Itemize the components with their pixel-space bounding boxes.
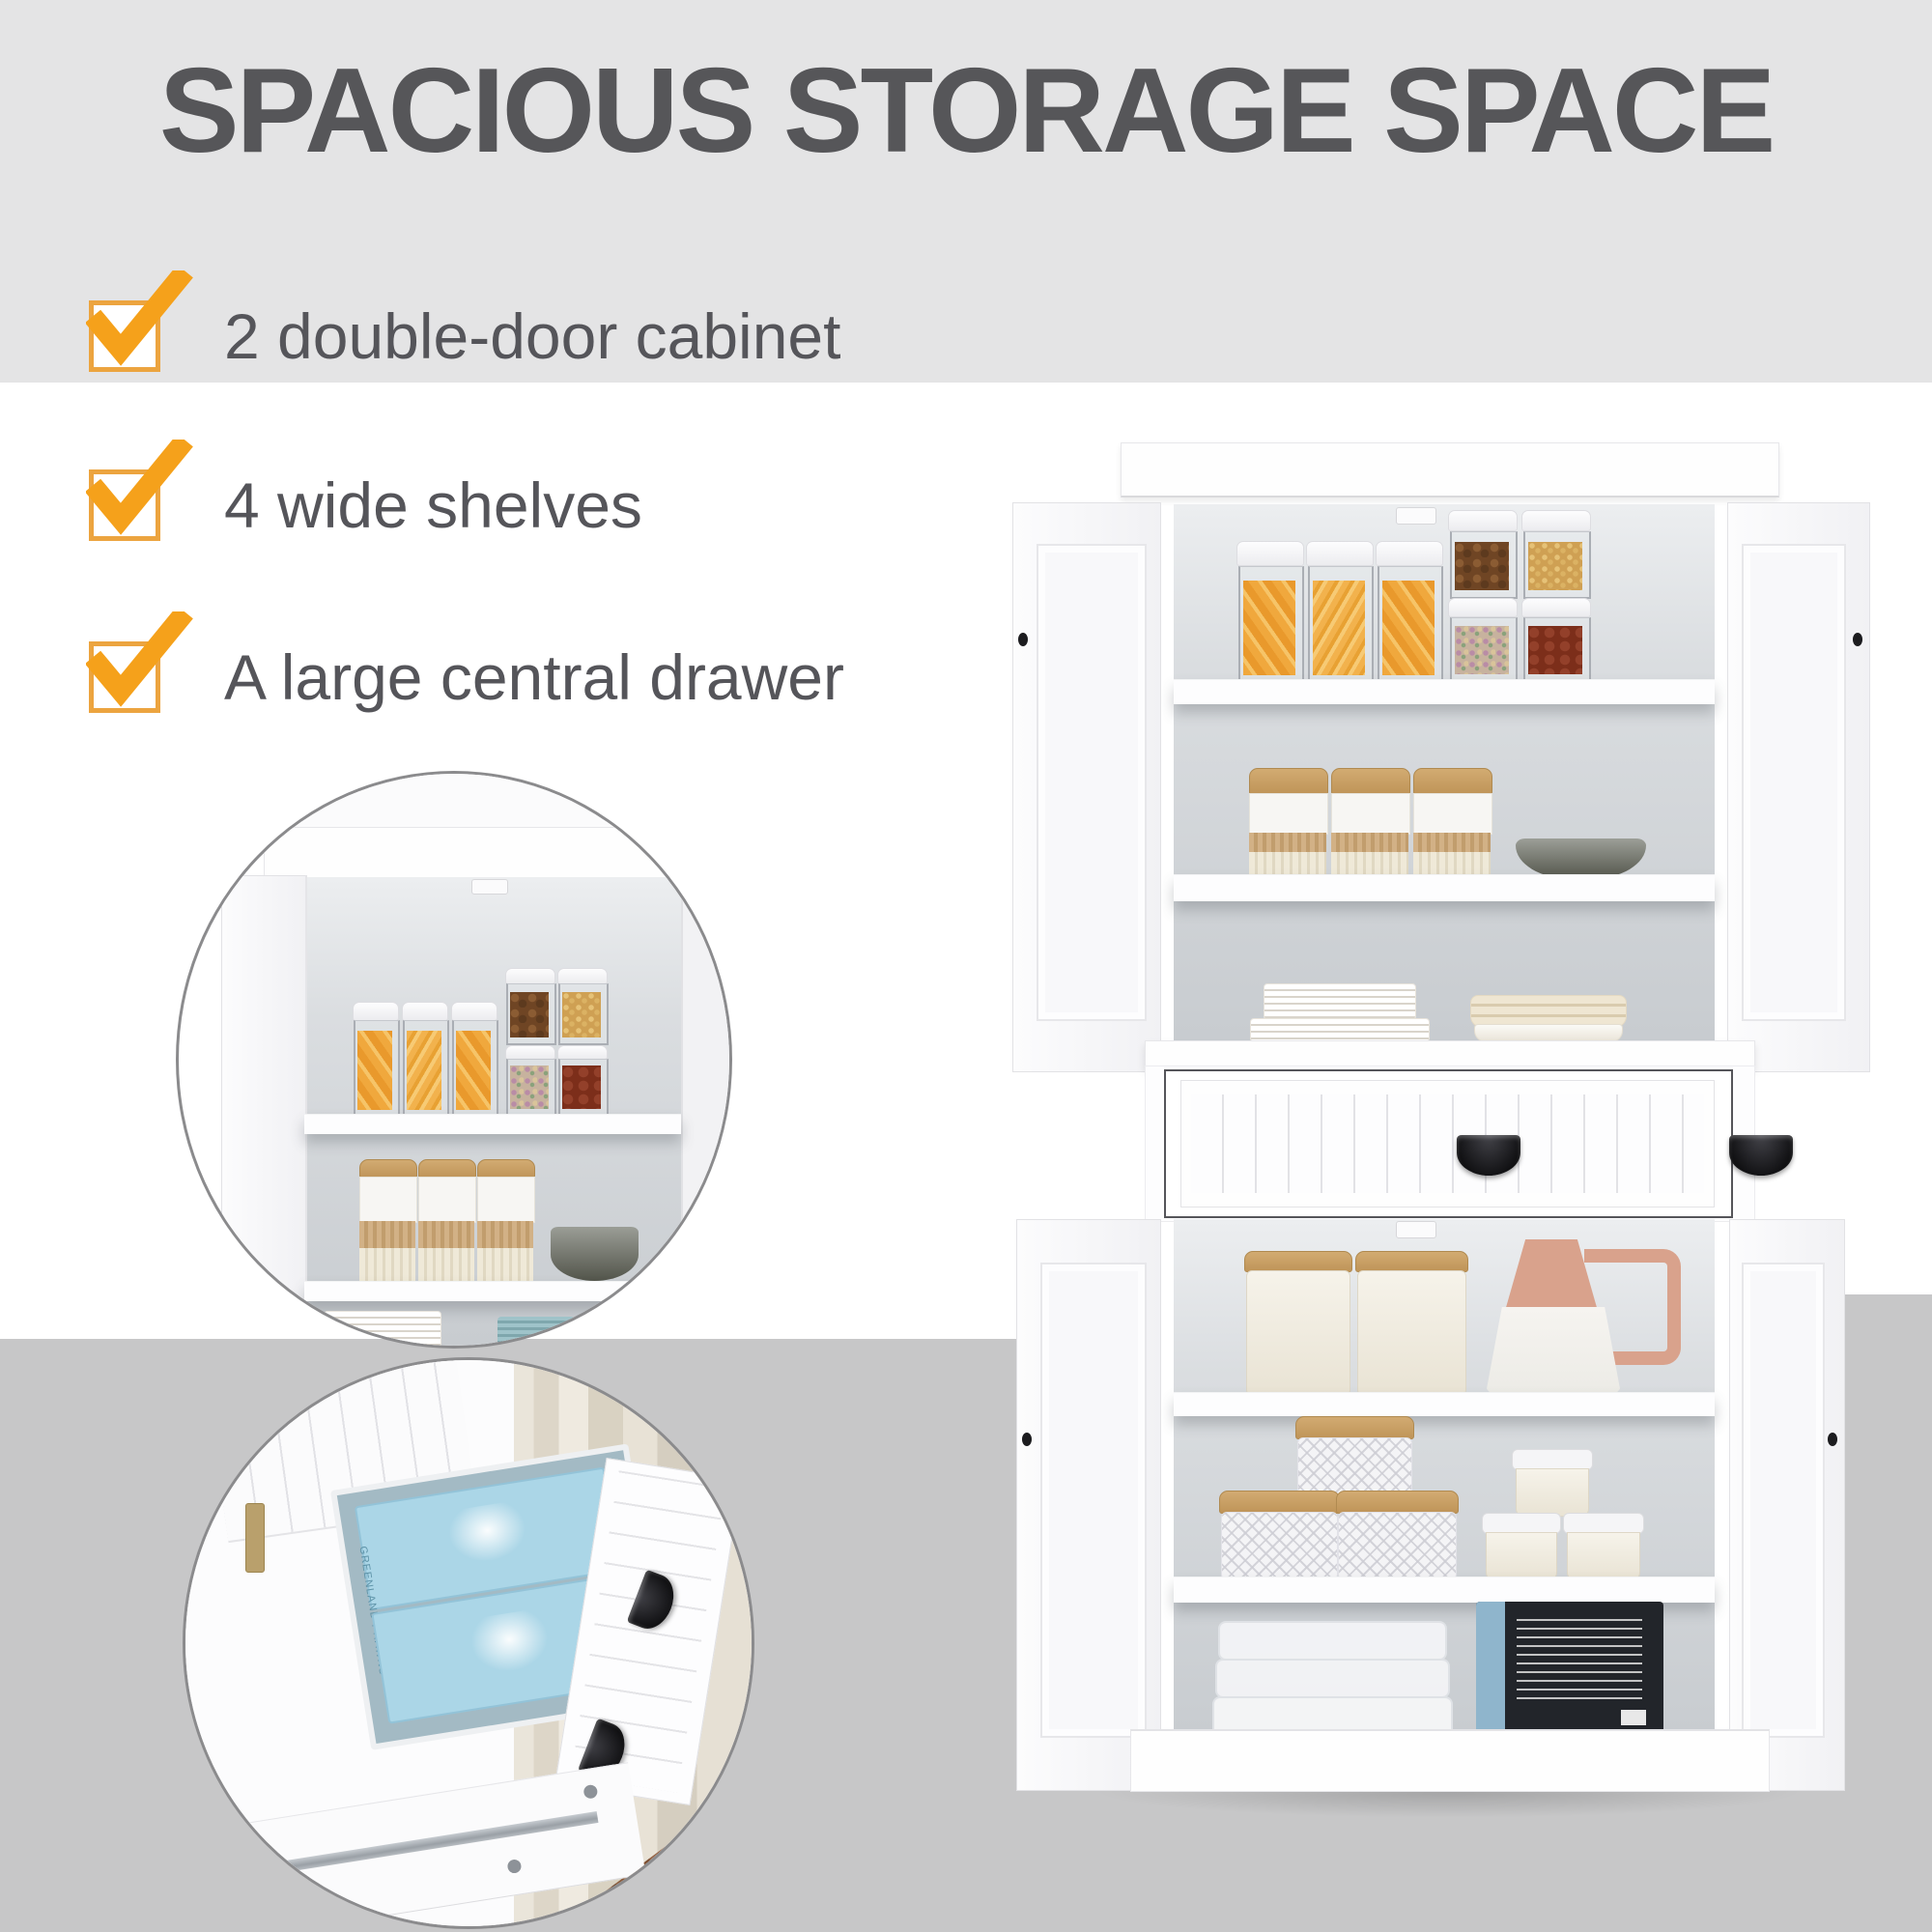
box-barcode [1621, 1710, 1646, 1725]
cereal-jar [1450, 617, 1518, 682]
inset-crown [264, 827, 683, 880]
hinge [245, 1503, 265, 1573]
shelf-3 [1174, 1392, 1715, 1416]
jar-lid [1448, 598, 1518, 617]
feature-label: 2 double-door cabinet [224, 299, 840, 373]
upper-left-door [1012, 502, 1161, 1072]
cabinet-crown [1121, 442, 1779, 497]
canister-band [359, 1221, 415, 1248]
soybean-jar [558, 983, 609, 1045]
inset-shelf-1 [304, 1114, 681, 1134]
food-container [1215, 1659, 1450, 1698]
textured-canister-lid [1219, 1491, 1340, 1514]
teal-bowl-stack [497, 1317, 575, 1346]
inset-shelf-2 [304, 1281, 681, 1301]
canister-band [418, 1221, 474, 1248]
tall-canister-lid [1244, 1251, 1352, 1272]
container-stack [1212, 1621, 1449, 1734]
jar-lid [557, 968, 608, 984]
plate-stack [324, 1311, 441, 1348]
penne-fill [456, 1031, 491, 1110]
door-panel [1742, 544, 1846, 1021]
canister-base [359, 1248, 415, 1281]
dates-jar [1523, 617, 1591, 682]
fusilli-fill [1313, 581, 1365, 675]
glass-bowl [551, 1227, 639, 1281]
box-artwork [445, 1499, 530, 1567]
tall-canister-lid [1355, 1251, 1468, 1272]
bowl-stack [1470, 995, 1627, 1028]
drawer-front [1180, 1080, 1715, 1207]
check-icon [86, 440, 194, 536]
plate-stack [1264, 983, 1416, 1020]
jar-lid [1448, 510, 1518, 531]
lower-right-door [1729, 1219, 1845, 1791]
ice-cream-cup [1486, 1532, 1557, 1580]
dates-jar [558, 1059, 609, 1117]
box-blue-strip [1476, 1602, 1505, 1734]
feature-item-shelves: 4 wide shelves [89, 465, 642, 546]
door-pin [1018, 633, 1028, 646]
jug-body [1486, 1307, 1621, 1394]
textured-canister-lid [1336, 1491, 1459, 1514]
checkbox [89, 469, 160, 541]
door-panel [1037, 544, 1147, 1021]
canister-top [1413, 793, 1492, 835]
penne-fill [1382, 581, 1435, 675]
walnut-jar [506, 983, 556, 1045]
pasta-jar [403, 1020, 449, 1117]
inset-left-door [221, 875, 307, 1348]
inset-top-bg [179, 774, 729, 832]
door-latch [1396, 1221, 1436, 1238]
tall-canister [1246, 1270, 1350, 1396]
box-text-lines [1517, 1619, 1642, 1702]
check-icon [86, 611, 194, 708]
canister-top [359, 1177, 417, 1223]
canister-lid [418, 1159, 476, 1179]
inset-circle-top-cabinet [176, 771, 732, 1349]
lower-left-door [1016, 1219, 1161, 1791]
door-pin [1828, 1433, 1837, 1446]
upper-right-door [1727, 502, 1870, 1072]
canister-band [1413, 833, 1491, 852]
canister-band [1249, 833, 1326, 852]
door-panel [1742, 1263, 1825, 1738]
fusilli-fill [407, 1031, 441, 1110]
counter-board [1145, 1040, 1755, 1068]
check-icon [86, 270, 194, 367]
screw [582, 1784, 598, 1800]
inset-right-wall [681, 877, 731, 1346]
canister-lid [1249, 768, 1328, 795]
canister-band [477, 1221, 533, 1248]
penne-fill [1243, 581, 1295, 675]
feature-item-cabinet: 2 double-door cabinet [89, 296, 840, 377]
door-panel [1040, 1263, 1147, 1738]
walnut-fill [1455, 542, 1509, 590]
soybean-fill [1528, 542, 1582, 590]
jar-lid [1376, 541, 1443, 566]
canister-lid [359, 1159, 417, 1179]
jar-lid [1521, 598, 1591, 617]
screw [506, 1859, 522, 1874]
door-pin [1022, 1433, 1032, 1446]
cereal-jar [506, 1059, 556, 1117]
jar-lid [557, 1045, 608, 1060]
checkbox [89, 641, 160, 713]
product-infographic: SPACIOUS STORAGE SPACE 2 double-door cab… [0, 0, 1932, 1932]
cup-lid [1512, 1449, 1593, 1470]
canister-top [1249, 793, 1328, 835]
jar-lid [353, 1002, 399, 1021]
canister-top [1331, 793, 1410, 835]
jar-lid [505, 968, 555, 984]
door-latch [1396, 507, 1436, 525]
shelf-2 [1174, 874, 1715, 901]
canister-base [418, 1248, 474, 1281]
canister-lid [477, 1159, 535, 1179]
jar-lid [402, 1002, 448, 1021]
tall-canister [1357, 1270, 1466, 1396]
dates-fill [562, 1065, 601, 1109]
pasta-jar [354, 1020, 400, 1117]
cabinet-photo [1005, 440, 1874, 1792]
pasta-jar [1378, 566, 1443, 684]
soybean-fill [562, 992, 601, 1037]
canister-top [418, 1177, 476, 1223]
plate-stack-large [1250, 1018, 1430, 1042]
feature-item-drawer: A large central drawer [89, 637, 844, 718]
walnut-jar [1450, 531, 1518, 599]
pasta-jar [1238, 566, 1304, 684]
jar-lid [1521, 510, 1591, 531]
dates-fill [1528, 626, 1582, 674]
page-title: SPACIOUS STORAGE SPACE [0, 43, 1932, 180]
door-pin [1853, 633, 1862, 646]
food-container [1218, 1621, 1447, 1661]
cup-lid [1563, 1513, 1644, 1534]
cabinet-base [1130, 1729, 1770, 1792]
textured-canister-lid [1295, 1416, 1414, 1439]
canister-band [1331, 833, 1408, 852]
feature-label: 4 wide shelves [224, 469, 642, 542]
drawer-beadboard [1191, 1094, 1704, 1193]
textured-canister [1221, 1512, 1338, 1580]
inset-latch [471, 879, 508, 895]
pasta-jar [1308, 566, 1374, 684]
canister-base [477, 1248, 533, 1281]
ice-cream-cup [1567, 1532, 1640, 1580]
walnut-fill [510, 992, 549, 1037]
drawer-cup-handle-right [1729, 1135, 1793, 1176]
inset-circle-drawer: GREENLAND PRAWNS POLAR SEAFOOD GREENLAND [183, 1357, 754, 1929]
canister-lid [1413, 768, 1492, 795]
soybean-jar [1523, 531, 1591, 599]
box-artwork [468, 1607, 553, 1677]
cup-lid [1482, 1513, 1561, 1534]
jar-lid [1306, 541, 1374, 566]
cereal-fill [1455, 626, 1509, 674]
drawer-slide-rail [234, 1811, 598, 1880]
canister-lid [1331, 768, 1410, 795]
jar-lid [505, 1045, 555, 1060]
shelf-4 [1174, 1577, 1715, 1603]
canister-top [477, 1177, 535, 1223]
checkbox [89, 300, 160, 372]
cereal-fill [510, 1065, 549, 1109]
textured-canister [1338, 1512, 1457, 1580]
penne-fill [357, 1031, 392, 1110]
jar-lid [1236, 541, 1304, 566]
jar-lid [451, 1002, 497, 1021]
ice-cream-cup [1516, 1468, 1589, 1517]
black-box [1476, 1602, 1663, 1734]
feature-label: A large central drawer [224, 640, 844, 714]
shelf-1 [1174, 679, 1715, 704]
pasta-jar [452, 1020, 498, 1117]
